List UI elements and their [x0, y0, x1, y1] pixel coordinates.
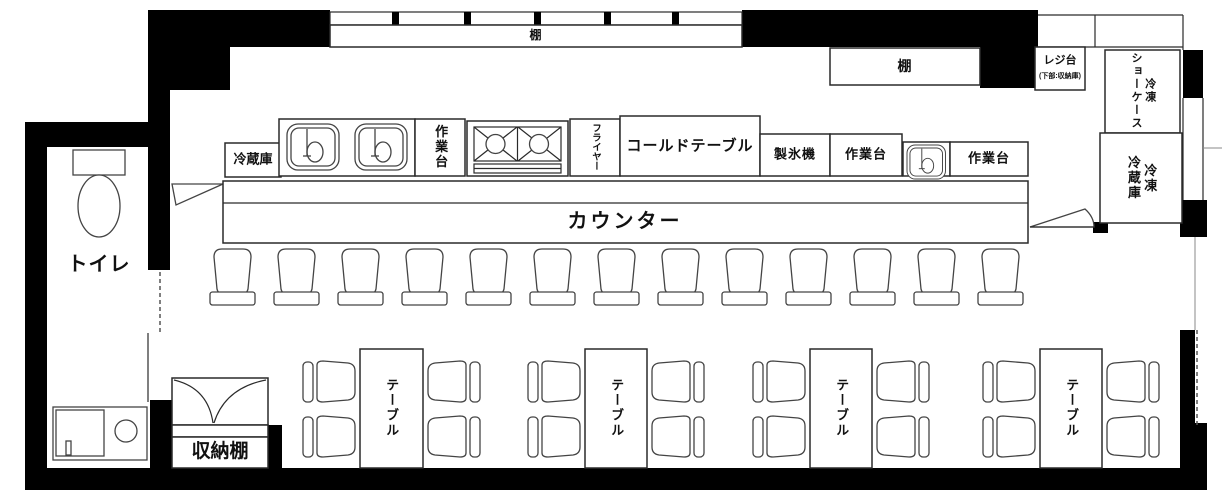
- back-shelf-label: 棚: [898, 58, 913, 74]
- toilet-label: トイレ: [68, 254, 131, 277]
- table-4-label: テーブル: [1063, 378, 1079, 438]
- register-note: (下部:収納庫): [1039, 73, 1081, 81]
- freezer-showcase-label: 冷凍 ショーケース: [1128, 52, 1156, 130]
- refrigerator-label: 冷蔵庫: [233, 153, 272, 168]
- labels-layer: 棚 棚 レジ台 (下部:収納庫) 冷凍 ショーケース 冷凍 冷蔵庫 冷蔵庫 作業…: [0, 0, 1228, 493]
- table-3-label: テーブル: [833, 378, 849, 438]
- cold-table-label: コールドテーブル: [626, 137, 753, 154]
- work-table-3-label: 作業台: [968, 152, 1010, 167]
- top-shelf-label: 棚: [529, 29, 542, 43]
- table-1-label: テーブル: [383, 378, 399, 438]
- freezer-refrigerator-label: 冷凍 冷蔵庫: [1125, 156, 1158, 201]
- restaurant-floor-plan: 棚 棚 レジ台 (下部:収納庫) 冷凍 ショーケース 冷凍 冷蔵庫 冷蔵庫 作業…: [0, 0, 1228, 493]
- counter-label: カウンター: [568, 211, 683, 234]
- work-table-1-label: 作業台: [432, 125, 448, 170]
- fryer-label: フライヤー: [589, 123, 601, 171]
- table-2-label: テーブル: [608, 378, 624, 438]
- register-label: レジ台: [1044, 55, 1077, 68]
- work-table-2-label: 作業台: [845, 148, 887, 163]
- ice-maker-label: 製氷機: [774, 148, 816, 163]
- storage-shelf-label: 収納棚: [191, 441, 248, 463]
